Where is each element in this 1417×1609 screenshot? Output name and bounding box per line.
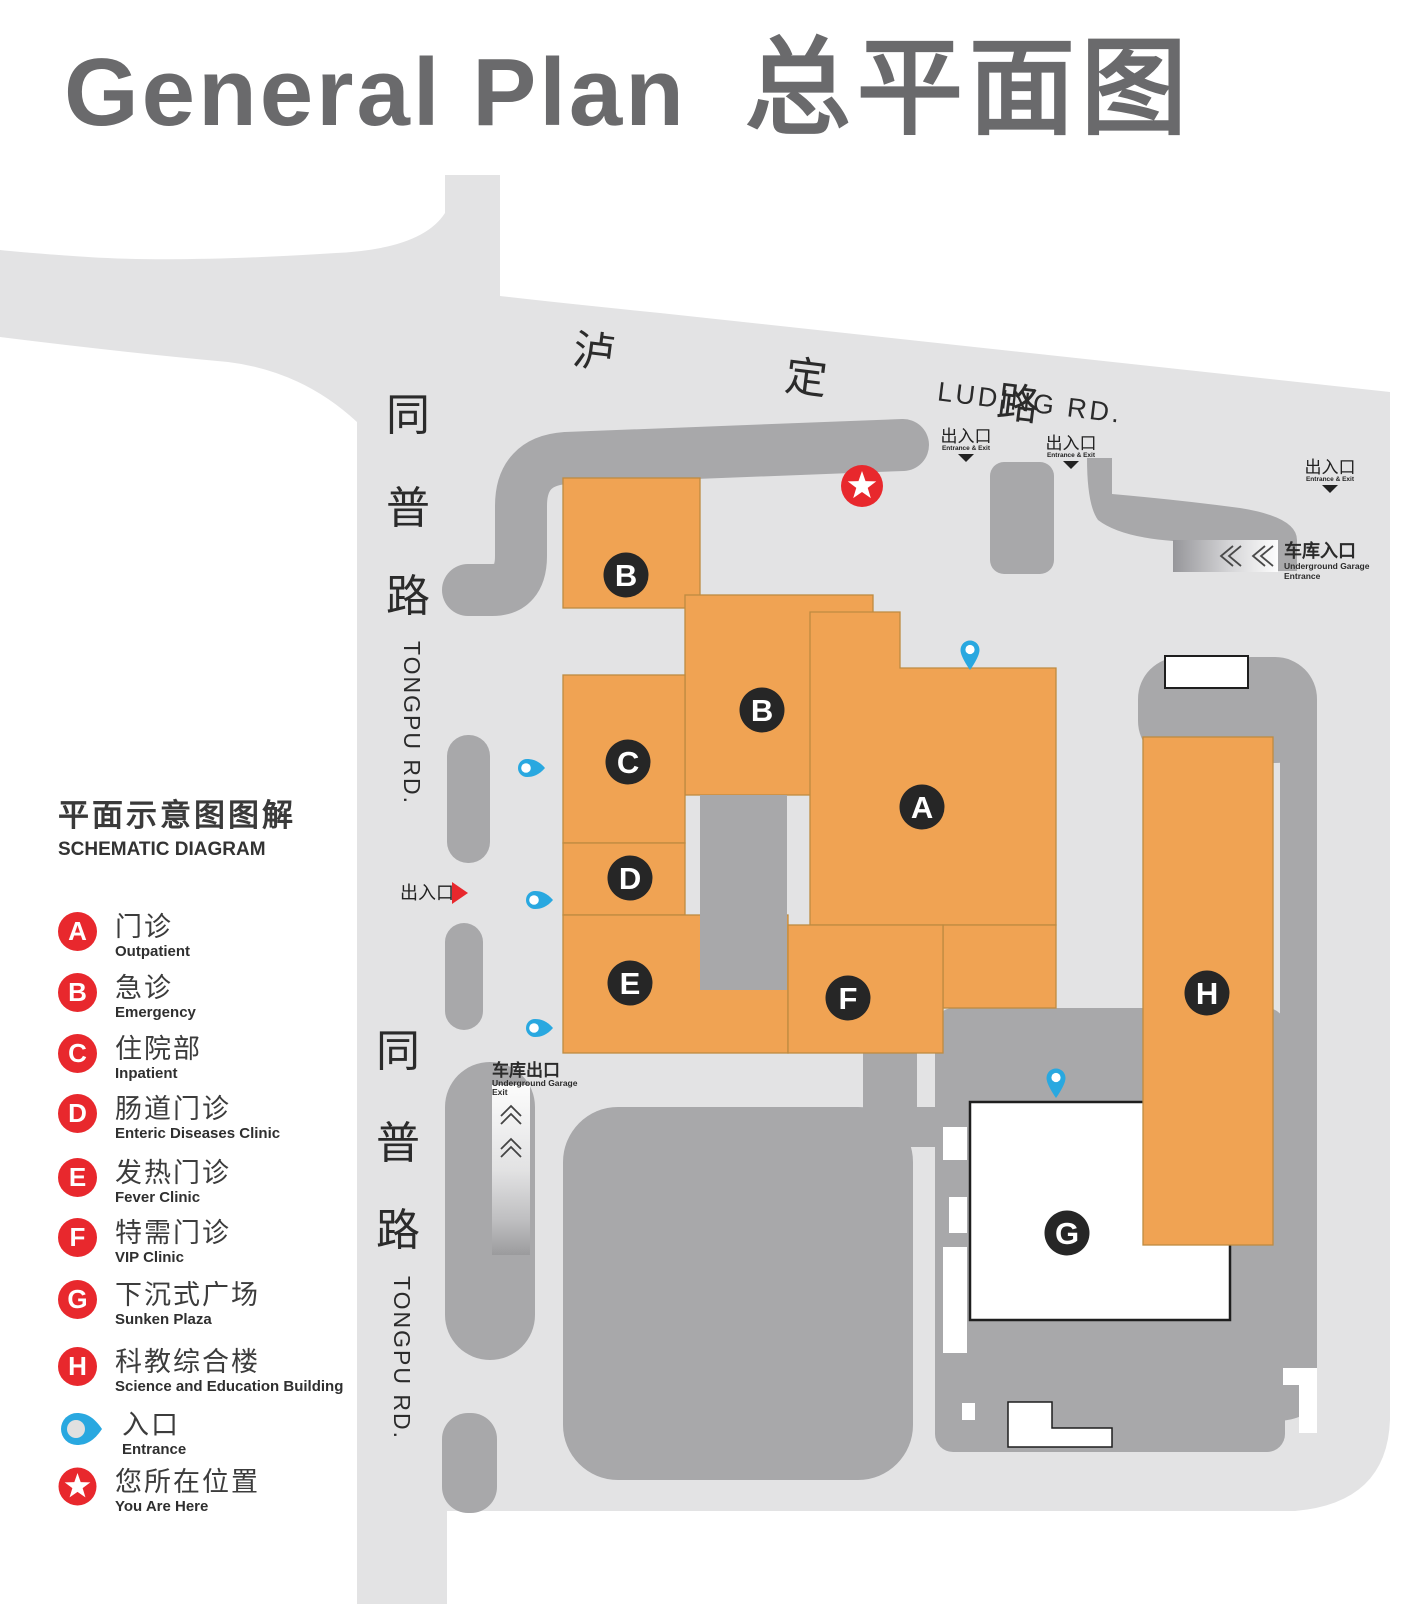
badge-f: F [826, 976, 871, 1021]
legend-entrance-zh: 入口 [122, 1410, 186, 1440]
legend-d-en: Enteric Diseases Clinic [115, 1125, 280, 1142]
legend-badge-d: D [58, 1094, 97, 1133]
legend-badge-b: B [58, 973, 97, 1012]
exit2-zh: 出入口 [1046, 434, 1097, 453]
badge-e: E [608, 961, 653, 1006]
courtyard [700, 795, 787, 990]
legend-a-en: Outpatient [115, 943, 190, 960]
legend-a-zh: 门诊 [115, 912, 190, 942]
exit2-en: Entrance & Exit [1047, 452, 1096, 459]
exit1-zh: 出入口 [941, 427, 992, 446]
star-icon [58, 1467, 97, 1506]
legend-item-c: C 住院部Inpatient [58, 1034, 202, 1082]
tongpu1-char3: 路 [386, 572, 430, 621]
legend-badge-f: F [58, 1218, 97, 1257]
h-loop-rail [1280, 700, 1317, 1421]
h-north-structure [1165, 656, 1248, 688]
badge-letter: C [617, 745, 639, 780]
legend-badge-e: E [58, 1158, 97, 1197]
legend-badge-a: A [58, 912, 97, 951]
badge-letter: D [619, 861, 641, 896]
small-square-south [962, 1403, 975, 1420]
legend-item-h: H 科教综合楼Science and Education Building [58, 1347, 343, 1395]
legend-b-en: Emergency [115, 1004, 196, 1021]
legend-e-en: Fever Clinic [115, 1189, 231, 1206]
legend-yah-zh: 您所在位置 [115, 1467, 260, 1497]
legend-b-zh: 急诊 [115, 973, 196, 1003]
tongpu2-char1: 同 [376, 1027, 420, 1076]
badge-b-north: B [604, 553, 649, 598]
legend-c-en: Inpatient [115, 1065, 202, 1082]
page-title-en: General Plan [64, 38, 687, 148]
pin-dot [965, 645, 974, 654]
tongpu2-char2: 普 [376, 1119, 420, 1168]
building-a-south [943, 925, 1056, 1008]
median-2 [445, 923, 483, 1030]
legend-item-entrance: 入口Entrance [58, 1410, 186, 1458]
entrance-drop-dot [521, 763, 531, 773]
badge-letter: B [615, 558, 637, 593]
garage-exit-label-en2: Exit [492, 1087, 508, 1097]
legend-f-zh: 特需门诊 [115, 1218, 231, 1248]
tongpu1-char1: 同 [386, 391, 430, 440]
you-are-here-marker [841, 465, 883, 507]
badge-letter: B [751, 693, 773, 728]
exit3-zh: 出入口 [1305, 458, 1356, 477]
legend-h-zh: 科教综合楼 [115, 1347, 343, 1377]
legend-title-en: SCHEMATIC DIAGRAM [58, 839, 296, 861]
white-right-band [1390, 175, 1417, 1604]
tongpu2-en: TONGPU RD. [389, 1276, 415, 1440]
badge-b-mid: B [740, 688, 785, 733]
entrance-drop-dot [529, 895, 539, 905]
page-title-zh: 总平面图 [745, 2, 1193, 156]
median-4 [442, 1413, 497, 1513]
parking-notch-2 [949, 1197, 967, 1233]
pin-dot [1051, 1073, 1060, 1082]
parking-notch-1 [943, 1127, 967, 1160]
tongpu1-char2: 普 [386, 484, 430, 533]
badge-h: H [1185, 971, 1230, 1016]
badge-letter: H [1196, 976, 1218, 1011]
garage-entrance-label-zh: 车库入口 [1284, 540, 1356, 561]
exit-west-zh: 出入口 [400, 883, 454, 903]
exit3-en: Entrance & Exit [1306, 476, 1355, 483]
entrance-drop-dot [529, 1023, 539, 1033]
tongpu1-en: TONGPU RD. [399, 641, 425, 805]
legend-badge-h: H [58, 1347, 97, 1386]
legend-g-zh: 下沉式广场 [115, 1280, 260, 1310]
legend-item-d: D 肠道门诊Enteric Diseases Clinic [58, 1094, 280, 1142]
exit1-en: Entrance & Exit [942, 445, 991, 452]
legend-item-f: F 特需门诊VIP Clinic [58, 1218, 231, 1266]
page-title: General Plan 总平面图 [64, 2, 1394, 156]
legend-badge-g: G [58, 1280, 97, 1319]
white-wedge-topleft [0, 175, 445, 259]
legend-yah-en: You Are Here [115, 1498, 260, 1515]
badge-a: A [900, 785, 945, 830]
legend-item-e: E 发热门诊Fever Clinic [58, 1158, 231, 1206]
legend-d-zh: 肠道门诊 [115, 1094, 280, 1124]
badge-letter: F [839, 981, 858, 1016]
legend-item-a: A 门诊Outpatient [58, 912, 190, 960]
parking-square [563, 1107, 913, 1480]
badge-g: G [1045, 1211, 1090, 1256]
legend-item-you-are-here: 您所在位置You Are Here [58, 1467, 260, 1515]
inner-road-block [990, 462, 1054, 574]
legend-h-en: Science and Education Building [115, 1378, 343, 1395]
legend-g-en: Sunken Plaza [115, 1311, 260, 1328]
garage-entrance-label-en1: Underground Garage [1284, 561, 1370, 571]
garage-entrance-label-en2: Entrance [1284, 571, 1321, 581]
garage-exit-bar [492, 1085, 530, 1255]
entrance-drop-icon [58, 1410, 104, 1449]
white-bottom-band [447, 1511, 1390, 1604]
badge-letter: G [1055, 1216, 1079, 1251]
median-1 [447, 735, 490, 863]
legend-title-zh: 平面示意图图解 [58, 790, 296, 835]
badge-letter: E [620, 966, 641, 1001]
badge-letter: A [911, 790, 933, 825]
rail-notch-1 [1283, 1368, 1317, 1385]
parking-notch-3 [943, 1247, 967, 1353]
tongpu2-char3: 路 [376, 1206, 420, 1255]
legend-badge-c: C [58, 1034, 97, 1073]
legend-e-zh: 发热门诊 [115, 1158, 231, 1188]
legend-item-g: G 下沉式广场Sunken Plaza [58, 1280, 260, 1328]
legend-c-zh: 住院部 [115, 1034, 202, 1064]
badge-d: D [608, 856, 653, 901]
badge-c: C [606, 740, 651, 785]
legend-title: 平面示意图图解 SCHEMATIC DIAGRAM [58, 790, 296, 861]
legend-f-en: VIP Clinic [115, 1249, 231, 1266]
rail-notch-2 [1299, 1385, 1317, 1433]
legend-entrance-en: Entrance [122, 1441, 186, 1458]
legend-item-b: B 急诊Emergency [58, 973, 196, 1021]
garage-exit-label-zh: 车库出口 [492, 1060, 560, 1080]
